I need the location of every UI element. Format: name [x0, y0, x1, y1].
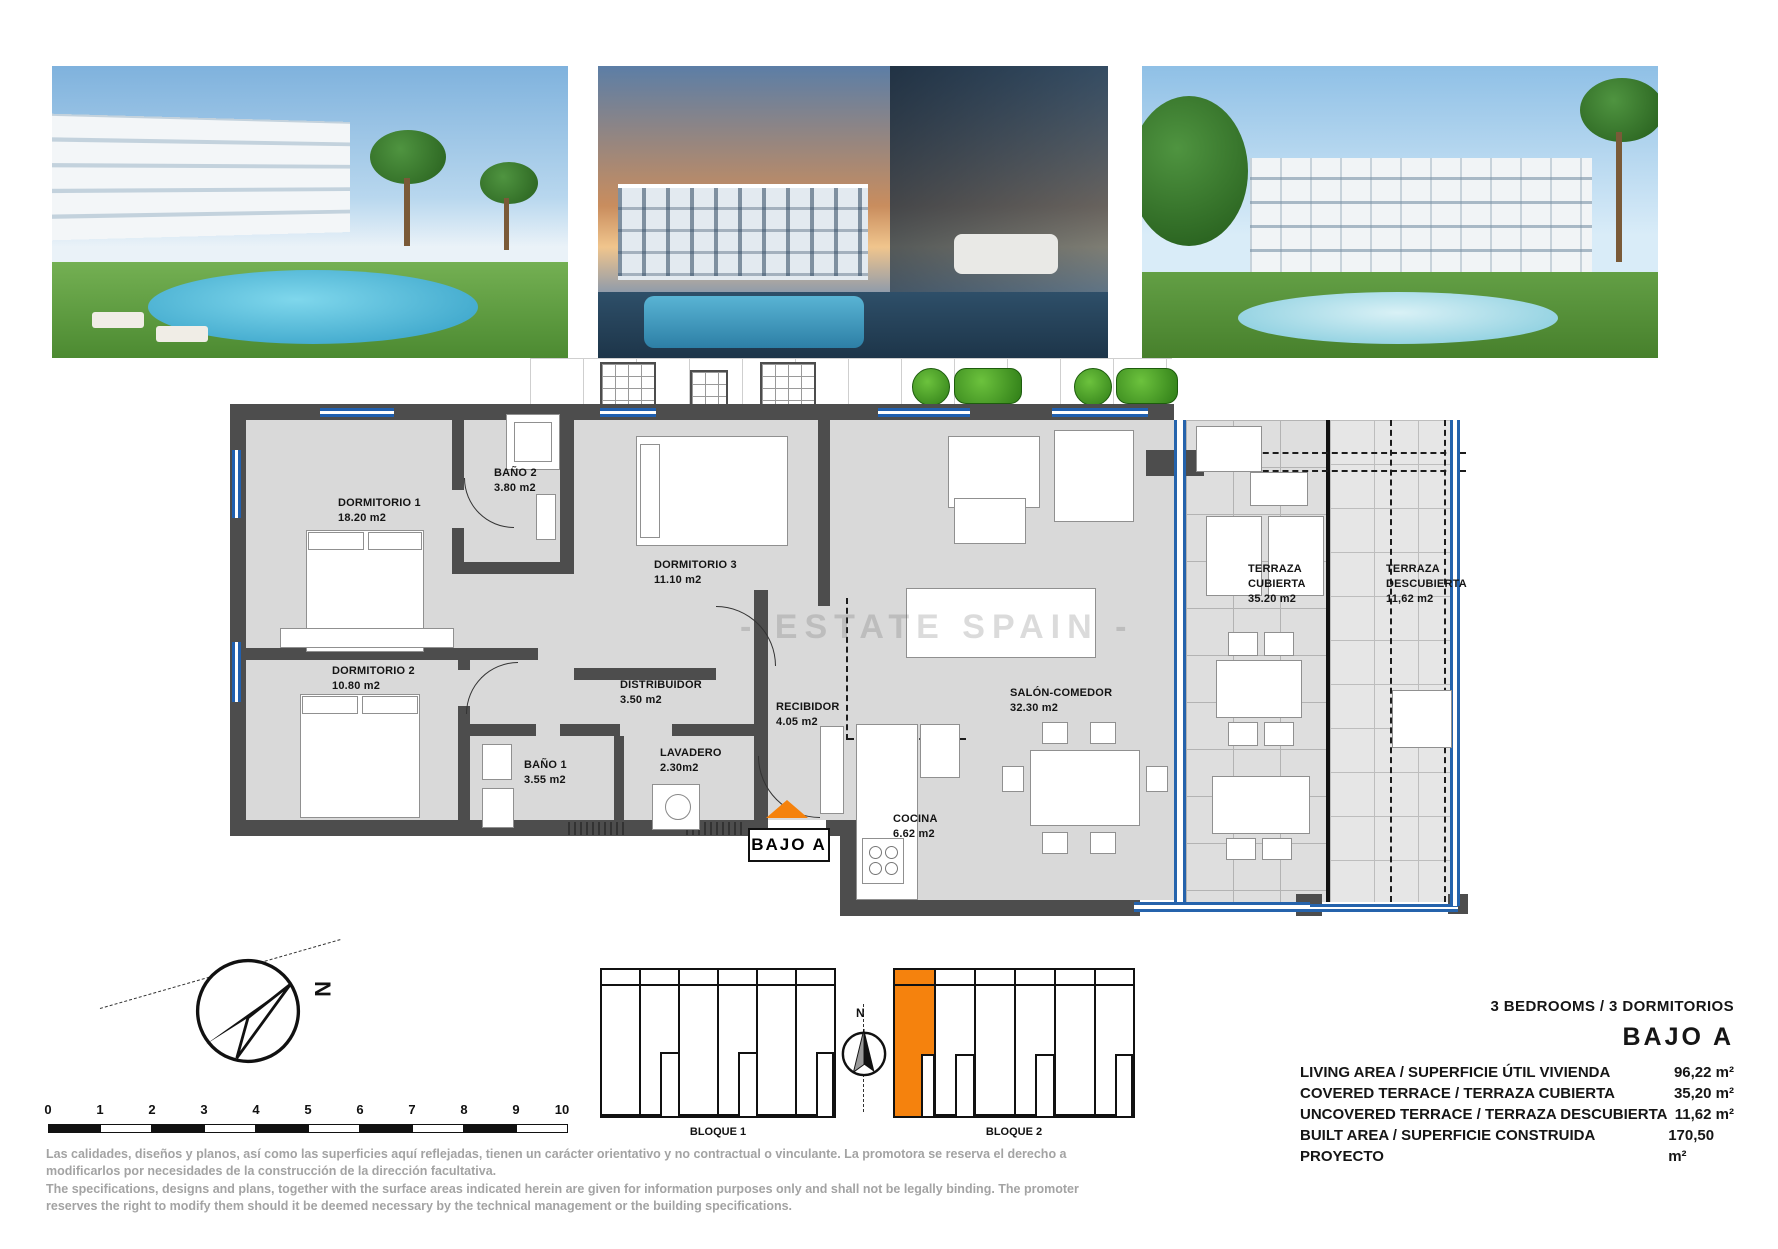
stair-notch	[955, 1054, 975, 1116]
stair-notch	[816, 1052, 834, 1116]
palm-trunk	[1616, 132, 1622, 262]
chair	[1264, 722, 1294, 746]
uncovered-terrace-table	[1392, 690, 1452, 748]
wall-living-bottom	[840, 900, 1140, 916]
wall-dorm3-living	[818, 404, 830, 606]
hob-burner	[885, 846, 898, 859]
grille-hatch	[568, 822, 626, 835]
stair-notch	[738, 1052, 758, 1116]
table-row: LIVING AREA / SUPERFICIE ÚTIL VIVIENDA96…	[1300, 1062, 1734, 1083]
window-top-4	[1052, 408, 1148, 417]
sink-bath2	[536, 494, 556, 540]
hall-closet	[820, 726, 844, 814]
block-2-diagram	[893, 968, 1135, 1118]
glass-wall-terrace	[1174, 420, 1186, 906]
dining-table	[1030, 750, 1140, 826]
palm-trunk	[404, 178, 410, 246]
sun-lounger	[92, 312, 144, 328]
hob-burner	[885, 862, 898, 875]
palm-tree	[480, 162, 538, 204]
washer-drum	[665, 794, 691, 820]
room-label-dorm1: DORMITORIO 118.20 m2	[338, 496, 421, 526]
terrace-table	[1216, 660, 1302, 718]
wardrobe-dorm1	[280, 628, 454, 648]
pool	[644, 296, 864, 348]
room-label-uncovered-terrace: TERRAZA DESCUBIERTA11,62 m2	[1386, 562, 1470, 607]
terrace-dashed-boundary	[1390, 420, 1392, 902]
room-label-covered-terrace: TERRAZA CUBIERTA35.20 m2	[1248, 562, 1332, 607]
block-divider	[717, 970, 719, 1114]
wall-hall-bottom-a	[470, 724, 536, 736]
window-top-1	[320, 408, 394, 417]
stair-notch	[1035, 1054, 1055, 1116]
plant-bush	[1074, 368, 1112, 406]
render-photo-pool-day	[52, 66, 568, 358]
hob	[862, 838, 904, 884]
block-1-label: BLOQUE 1	[600, 1126, 836, 1138]
room-label-living: SALÓN-COMEDOR32.30 m2	[1010, 686, 1112, 716]
plant-bush	[912, 368, 950, 406]
table-row: BUILT AREA / SUPERFICIE CONSTRUIDA PROYE…	[1300, 1125, 1734, 1167]
walkway-tile	[600, 362, 656, 408]
wall-hall-bottom-b	[560, 724, 620, 736]
north-label: N	[309, 981, 335, 997]
shower-tray	[514, 422, 552, 462]
sun-lounger	[156, 326, 208, 342]
stair-notch	[1115, 1054, 1133, 1116]
sofa-b	[1054, 430, 1134, 522]
glass-terrace-right	[1450, 420, 1460, 906]
terrace-dashed-boundary	[1444, 420, 1446, 902]
coffee-table	[954, 498, 1026, 544]
unit-name: BAJO A	[1300, 1023, 1734, 1052]
hob-burner	[869, 862, 882, 875]
block-divider	[639, 970, 641, 1114]
table-row: COVERED TERRACE / TERRAZA CUBIERTA35,20 …	[1300, 1083, 1734, 1104]
chair	[1228, 632, 1258, 656]
wall-bath1-laundry-divider	[614, 736, 624, 832]
block-divider	[795, 970, 797, 1114]
room-label-dorm2: DORMITORIO 210.80 m2	[332, 664, 415, 694]
chair	[1264, 632, 1294, 656]
window-left-1	[232, 450, 241, 518]
pillow	[640, 444, 660, 538]
block-divider	[1014, 970, 1016, 1114]
room-label-bath1: BAÑO 13.55 m2	[524, 758, 567, 788]
wall-dorm2-right	[458, 706, 470, 832]
disclaimer-es: Las calidades, diseños y planos, así com…	[46, 1146, 1092, 1179]
room-label-bath2: BAÑO 23.80 m2	[494, 466, 537, 496]
brochure-page: - ESTATE SPAIN - DORMITORIO 118.20 m2 BA…	[0, 0, 1778, 1249]
window-top-3	[878, 408, 970, 417]
palm-tree	[370, 130, 446, 184]
wall-dorm2-right-stub	[458, 660, 470, 670]
glass-terrace-bottom	[1310, 904, 1458, 912]
wall-bath2-bottom	[452, 562, 574, 574]
palm-trunk	[504, 198, 509, 250]
chair	[1002, 766, 1024, 792]
unit-label-badge: BAJO A	[748, 828, 830, 862]
terrace-sofa	[954, 234, 1058, 274]
block-1-diagram	[600, 968, 836, 1118]
chair	[1226, 838, 1256, 860]
stair-notch	[660, 1052, 680, 1116]
room-label-entryhall: RECIBIDOR4.05 m2	[776, 700, 840, 730]
chair	[1042, 722, 1068, 744]
small-compass-icon	[840, 1026, 888, 1078]
chair	[1042, 832, 1068, 854]
plant-hedge	[1116, 368, 1178, 404]
terrace-divider-line	[1326, 420, 1330, 902]
building-floors	[1250, 158, 1592, 276]
block-divider	[1094, 970, 1096, 1114]
compass-rose-icon	[192, 955, 304, 1067]
entry-arrow-icon	[766, 800, 808, 818]
room-label-hall: DISTRIBUIDOR3.50 m2	[620, 678, 702, 708]
room-label-dorm3: DORMITORIO 311.10 m2	[654, 558, 737, 588]
window-top-2	[600, 408, 656, 417]
plant-hedge	[954, 368, 1022, 404]
chair	[1228, 722, 1258, 746]
scale-bar-segments	[48, 1124, 568, 1133]
pillow	[302, 696, 358, 714]
chair	[1262, 838, 1292, 860]
chair	[1090, 722, 1116, 744]
unit-details: 3 BEDROOMS / 3 DORMITORIOS BAJO A LIVING…	[1300, 998, 1734, 1167]
wall-hall-bottom-c	[672, 724, 754, 736]
fridge	[920, 724, 960, 778]
walkway-tile	[760, 362, 816, 408]
area-table: LIVING AREA / SUPERFICIE ÚTIL VIVIENDA96…	[1300, 1062, 1734, 1167]
render-photo-building-day	[1142, 66, 1658, 358]
pillow	[308, 532, 364, 550]
pillow	[362, 696, 418, 714]
room-label-kitchen: COCINA6.62 m2	[893, 812, 938, 842]
legal-disclaimer: Las calidades, diseños y planos, así com…	[46, 1146, 1092, 1216]
glass-wall-south	[1134, 902, 1310, 912]
north-label-small: N	[856, 1006, 865, 1020]
walkway-tile	[690, 370, 728, 408]
window-left-2	[232, 642, 241, 702]
building	[52, 113, 350, 240]
wall-dorm1-right-upper	[452, 404, 464, 490]
room-label-laundry: LAVADERO2.30m2	[660, 746, 722, 776]
pool	[1238, 292, 1558, 344]
watermark: - ESTATE SPAIN -	[740, 608, 1133, 647]
block-2-label: BLOQUE 2	[893, 1126, 1135, 1138]
render-photo-sunset-terrace	[598, 66, 1108, 358]
chair	[1090, 832, 1116, 854]
toilet-bath1	[482, 744, 512, 780]
building-windows	[618, 188, 868, 276]
wall-bath2-right	[560, 404, 574, 574]
disclaimer-en: The specifications, designs and plans, t…	[46, 1181, 1092, 1214]
pillow	[368, 532, 422, 550]
hob-burner	[869, 846, 882, 859]
stair-notch	[921, 1054, 935, 1116]
sink-bath1	[482, 788, 514, 828]
chair	[1146, 766, 1168, 792]
bedrooms-line: 3 BEDROOMS / 3 DORMITORIOS	[1300, 998, 1734, 1015]
planter	[1196, 426, 1262, 472]
table-row: UNCOVERED TERRACE / TERRAZA DESCUBIERTA1…	[1300, 1104, 1734, 1125]
planter	[1250, 472, 1308, 506]
terrace-table-2	[1212, 776, 1310, 834]
